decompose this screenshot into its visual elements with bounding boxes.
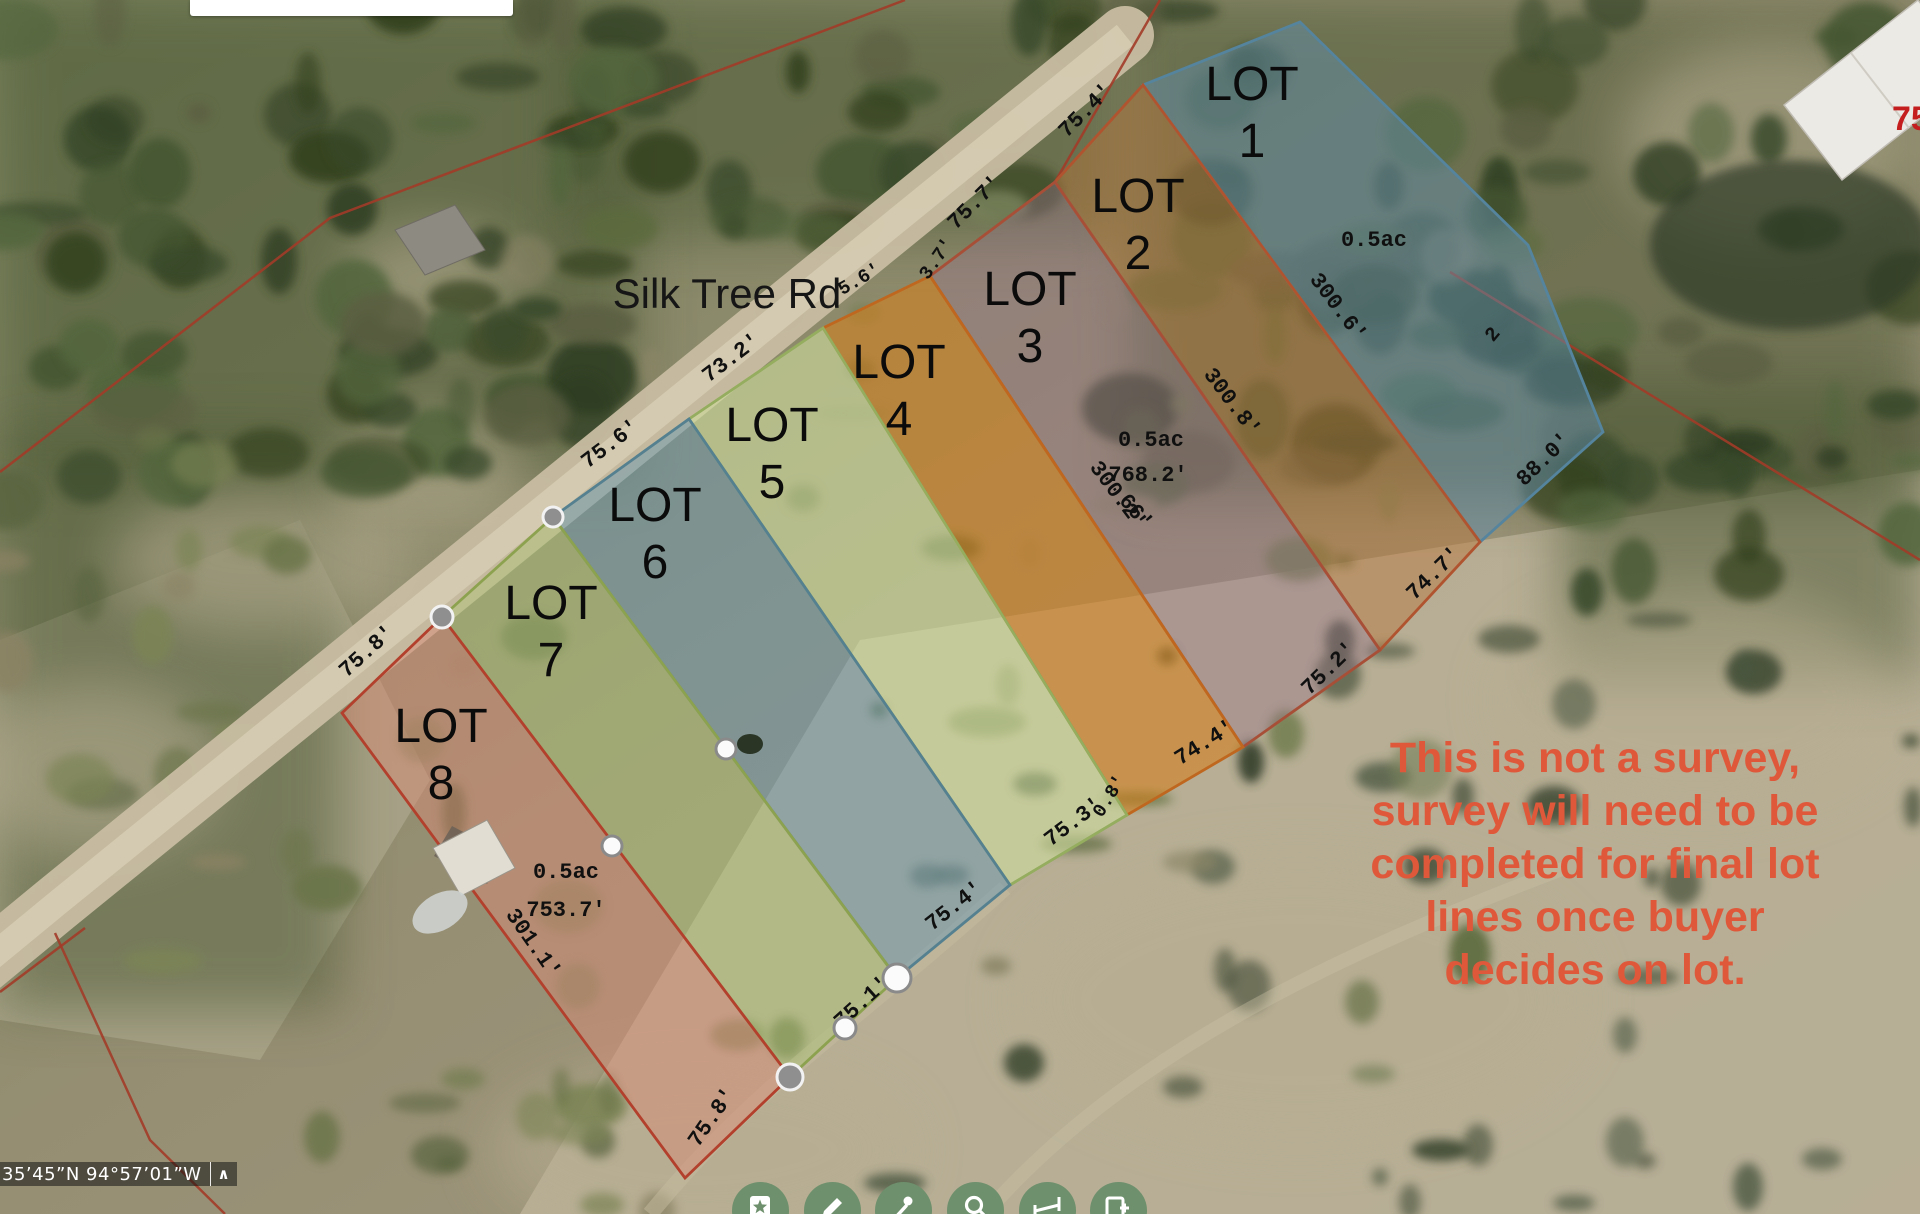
lot-7-number: 7 bbox=[538, 634, 565, 687]
vertex-handle[interactable] bbox=[716, 739, 736, 759]
lot-6-number: 6 bbox=[642, 536, 669, 589]
lot-5-number: 5 bbox=[759, 456, 786, 509]
lot-8-area-label: 0.5ac bbox=[533, 860, 599, 885]
measure-icon bbox=[1030, 1191, 1064, 1214]
lot-4-number: 4 bbox=[886, 393, 913, 446]
lot-8-number: 8 bbox=[428, 757, 455, 810]
coordinates-text: 35’45”N 94°57’01”W bbox=[2, 1164, 210, 1185]
chevron-up-icon: ∧ bbox=[218, 1165, 230, 1183]
street-view-icon bbox=[886, 1191, 920, 1214]
road-name-label: Silk Tree Rd bbox=[613, 270, 842, 317]
lot-4-label: LOT bbox=[852, 336, 945, 389]
lot-3-number: 3 bbox=[1017, 320, 1044, 373]
house-number-label: 751 bbox=[1892, 100, 1920, 138]
bookmark-icon bbox=[743, 1191, 777, 1214]
lot-1-area-label: 0.5ac bbox=[1341, 228, 1407, 253]
print-icon bbox=[1101, 1191, 1135, 1214]
lot-1-number: 1 bbox=[1239, 115, 1266, 168]
lot-8-label: LOT bbox=[394, 700, 487, 753]
disclaimer-line: This is not a survey, bbox=[1390, 734, 1800, 782]
disclaimer-line: lines once buyer bbox=[1425, 893, 1765, 941]
vertex-handle[interactable] bbox=[777, 1064, 803, 1090]
lot-2-number: 2 bbox=[1125, 227, 1152, 280]
lot-7-label: LOT bbox=[504, 577, 597, 630]
collapse-coordinates-button[interactable]: ∧ bbox=[210, 1162, 237, 1186]
vertex-handle[interactable] bbox=[602, 836, 622, 856]
draw-icon bbox=[815, 1191, 849, 1214]
lot-3-label: LOT bbox=[983, 263, 1076, 316]
parcel-map[interactable]: 75.4'75.7'3.7'5.6'73.2'75.6'75.8'300.6'3… bbox=[0, 0, 1920, 1214]
map-canvas[interactable]: 75.4'75.7'3.7'5.6'73.2'75.6'75.8'300.6'3… bbox=[0, 0, 1920, 1214]
search-icon bbox=[958, 1191, 992, 1214]
lot-6-label: LOT bbox=[608, 479, 701, 532]
disclaimer-line: decides on lot. bbox=[1444, 946, 1745, 994]
cropped-panel bbox=[190, 0, 513, 16]
lot-2-label: LOT bbox=[1091, 170, 1184, 223]
disclaimer-line: completed for final lot bbox=[1370, 840, 1819, 888]
disclaimer-line: survey will need to be bbox=[1372, 787, 1819, 835]
lot-3-area-label: 0.5ac bbox=[1118, 428, 1184, 453]
vertex-handle[interactable] bbox=[543, 507, 563, 527]
lot-1-label: LOT bbox=[1205, 58, 1298, 111]
vertex-handle[interactable] bbox=[431, 606, 453, 628]
vertex-handle[interactable] bbox=[834, 1017, 856, 1039]
lot-5-label: LOT bbox=[725, 399, 818, 452]
vertex-handle[interactable] bbox=[883, 964, 911, 992]
dimension-label: 753.7' bbox=[526, 898, 605, 923]
coordinates-bar: 35’45”N 94°57’01”W ∧ bbox=[0, 1162, 237, 1186]
